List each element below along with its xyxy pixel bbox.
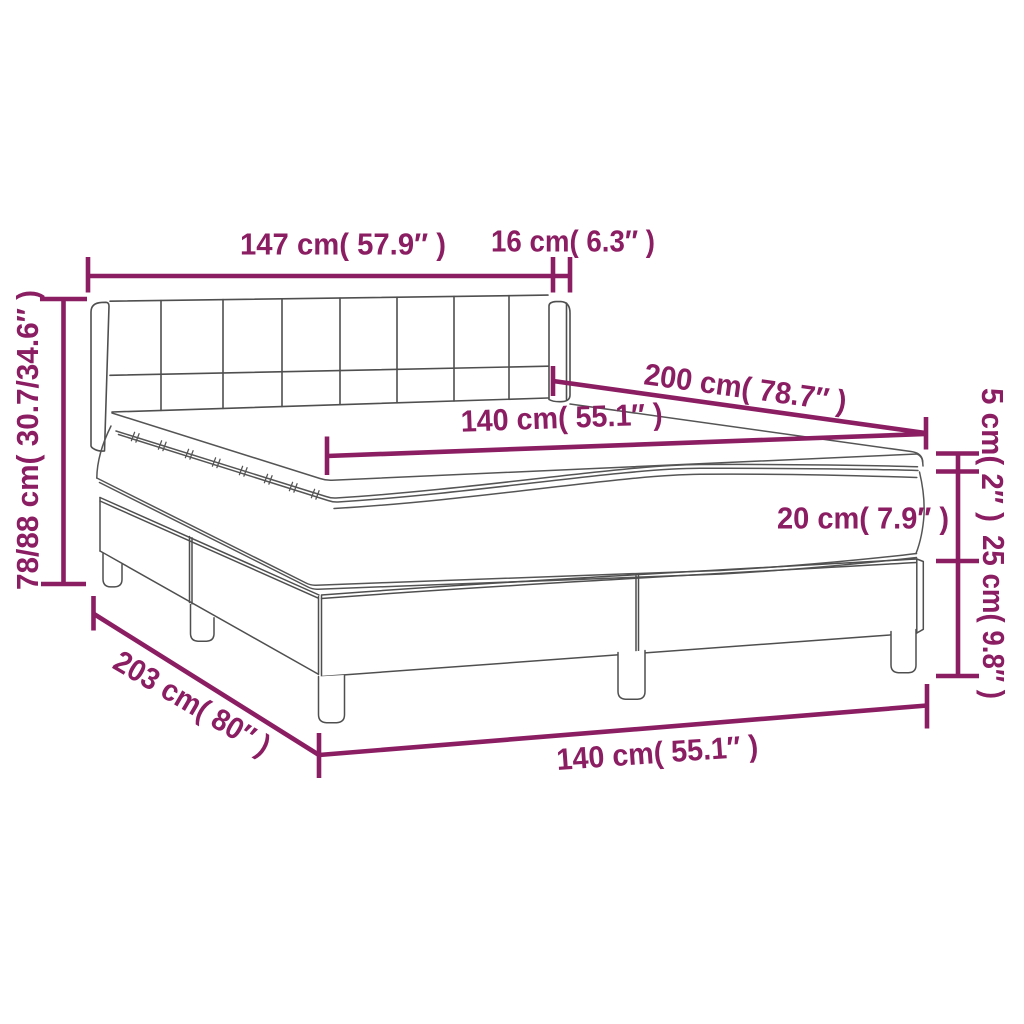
svg-text:20 cm( 7.9″ ): 20 cm( 7.9″ ) (777, 502, 949, 536)
svg-text:25 cm( 9.8″ ): 25 cm( 9.8″ ) (976, 535, 1010, 699)
svg-text:147 cm( 57.9″ ): 147 cm( 57.9″ ) (240, 228, 446, 262)
svg-text:16 cm( 6.3″ ): 16 cm( 6.3″ ) (491, 225, 655, 259)
svg-text:5 cm( 2″ ): 5 cm( 2″ ) (975, 388, 1009, 522)
svg-text:78/88 cm( 30.7/34.6″ ): 78/88 cm( 30.7/34.6″ ) (11, 290, 45, 590)
